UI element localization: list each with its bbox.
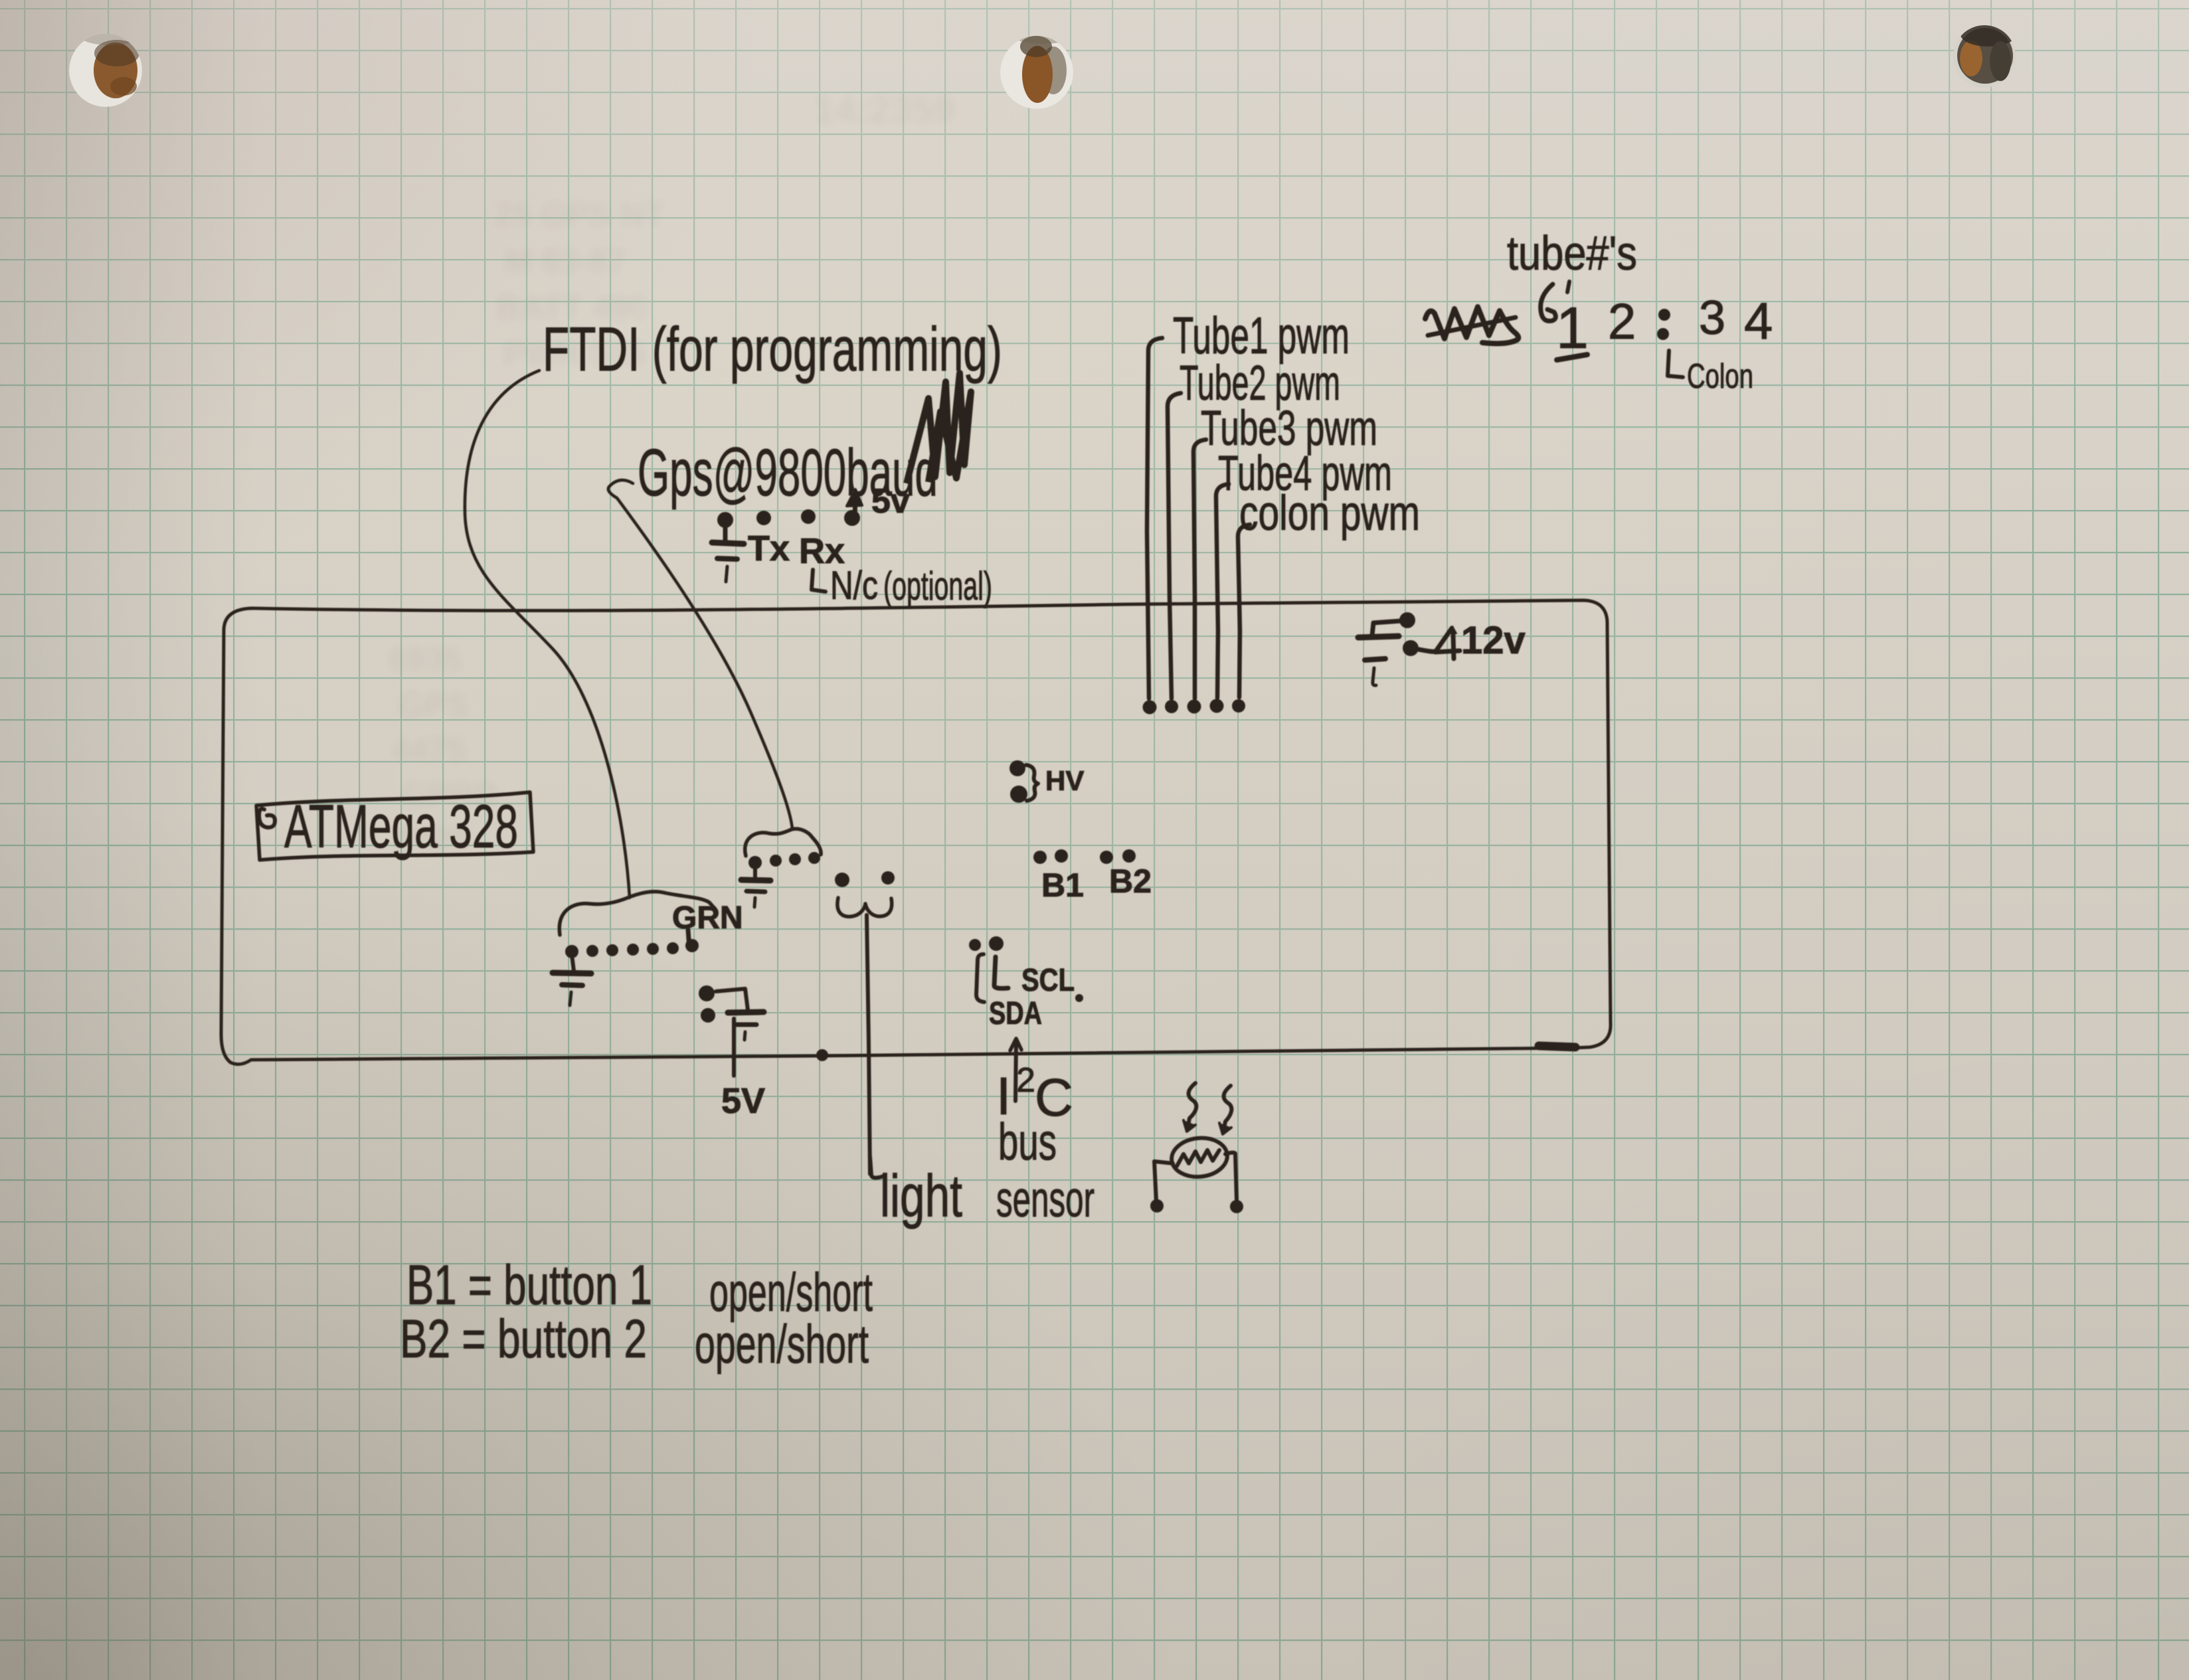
svg-text:5v: 5v xyxy=(871,482,910,521)
svg-text:2: 2 xyxy=(1016,1061,1035,1100)
svg-text:B1: B1 xyxy=(1041,867,1084,904)
svg-text:4: 4 xyxy=(1744,292,1773,350)
svg-text:6935: 6935 xyxy=(389,641,462,678)
svg-text:B1 = button 1: B1 = button 1 xyxy=(406,1254,652,1316)
svg-text:12v: 12v xyxy=(1461,619,1526,662)
svg-text:1: 1 xyxy=(1556,295,1589,361)
svg-text:bus: bus xyxy=(998,1112,1057,1171)
svg-text:Colon: Colon xyxy=(1687,357,1753,396)
svg-text:sensor: sensor xyxy=(996,1171,1094,1228)
svg-text:open/short: open/short xyxy=(695,1314,869,1375)
svg-text:GRN: GRN xyxy=(672,900,743,936)
svg-text:tube#'s: tube#'s xyxy=(1507,227,1637,280)
svg-text:(optional): (optional) xyxy=(883,564,992,608)
svg-text:14:2359: 14:2359 xyxy=(814,88,955,131)
svg-text:colon pwm: colon pwm xyxy=(1239,485,1420,541)
svg-text:B2 = button 2: B2 = button 2 xyxy=(400,1309,647,1369)
svg-text:25 GPS NT: 25 GPS NT xyxy=(495,196,665,233)
svg-text:SCL: SCL xyxy=(1021,963,1075,998)
svg-text:FTDI (for programming): FTDI (for programming) xyxy=(543,314,1002,384)
svg-text:GPS: GPS xyxy=(398,686,469,723)
svg-text:2: 2 xyxy=(1608,294,1636,350)
svg-text:M 63-87: M 63-87 xyxy=(505,242,626,280)
svg-text:SDA: SDA xyxy=(989,996,1042,1031)
svg-text:HV: HV xyxy=(1045,765,1084,796)
svg-text:5V: 5V xyxy=(721,1081,765,1121)
svg-text:B2: B2 xyxy=(1109,863,1152,900)
svg-text:ATMega 328: ATMega 328 xyxy=(284,793,518,861)
svg-text:4475: 4475 xyxy=(392,731,466,768)
svg-text:Tx: Tx xyxy=(748,529,790,568)
svg-text:3: 3 xyxy=(1699,292,1725,345)
svg-text:N/c: N/c xyxy=(830,563,878,608)
svg-text:light: light xyxy=(880,1163,962,1230)
